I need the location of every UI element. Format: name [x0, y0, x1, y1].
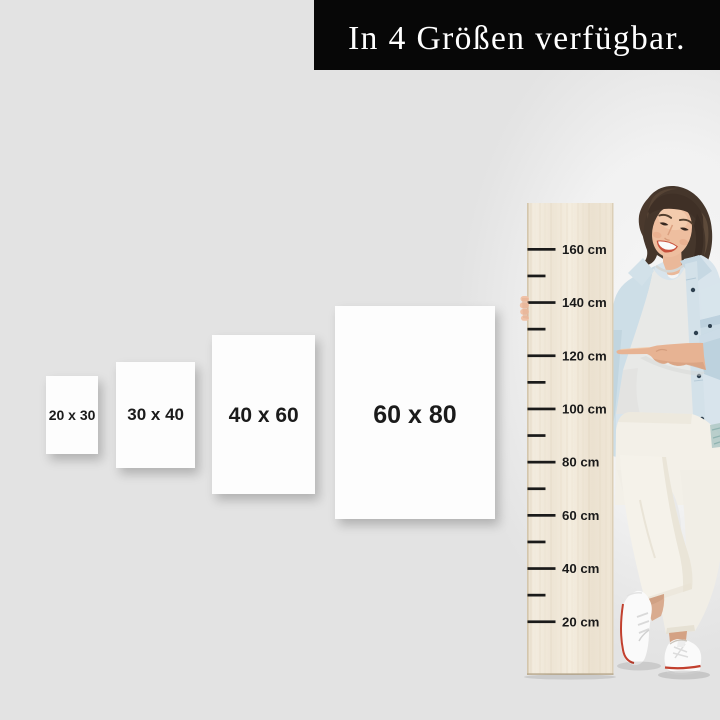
svg-text:20 cm: 20 cm [562, 614, 599, 629]
svg-text:80 cm: 80 cm [562, 455, 599, 470]
svg-text:160 cm: 160 cm [562, 242, 607, 257]
svg-text:60 cm: 60 cm [562, 508, 599, 523]
svg-text:120 cm: 120 cm [562, 348, 607, 363]
svg-text:100 cm: 100 cm [562, 402, 607, 417]
svg-text:140 cm: 140 cm [562, 295, 607, 310]
svg-text:40 cm: 40 cm [562, 561, 599, 576]
